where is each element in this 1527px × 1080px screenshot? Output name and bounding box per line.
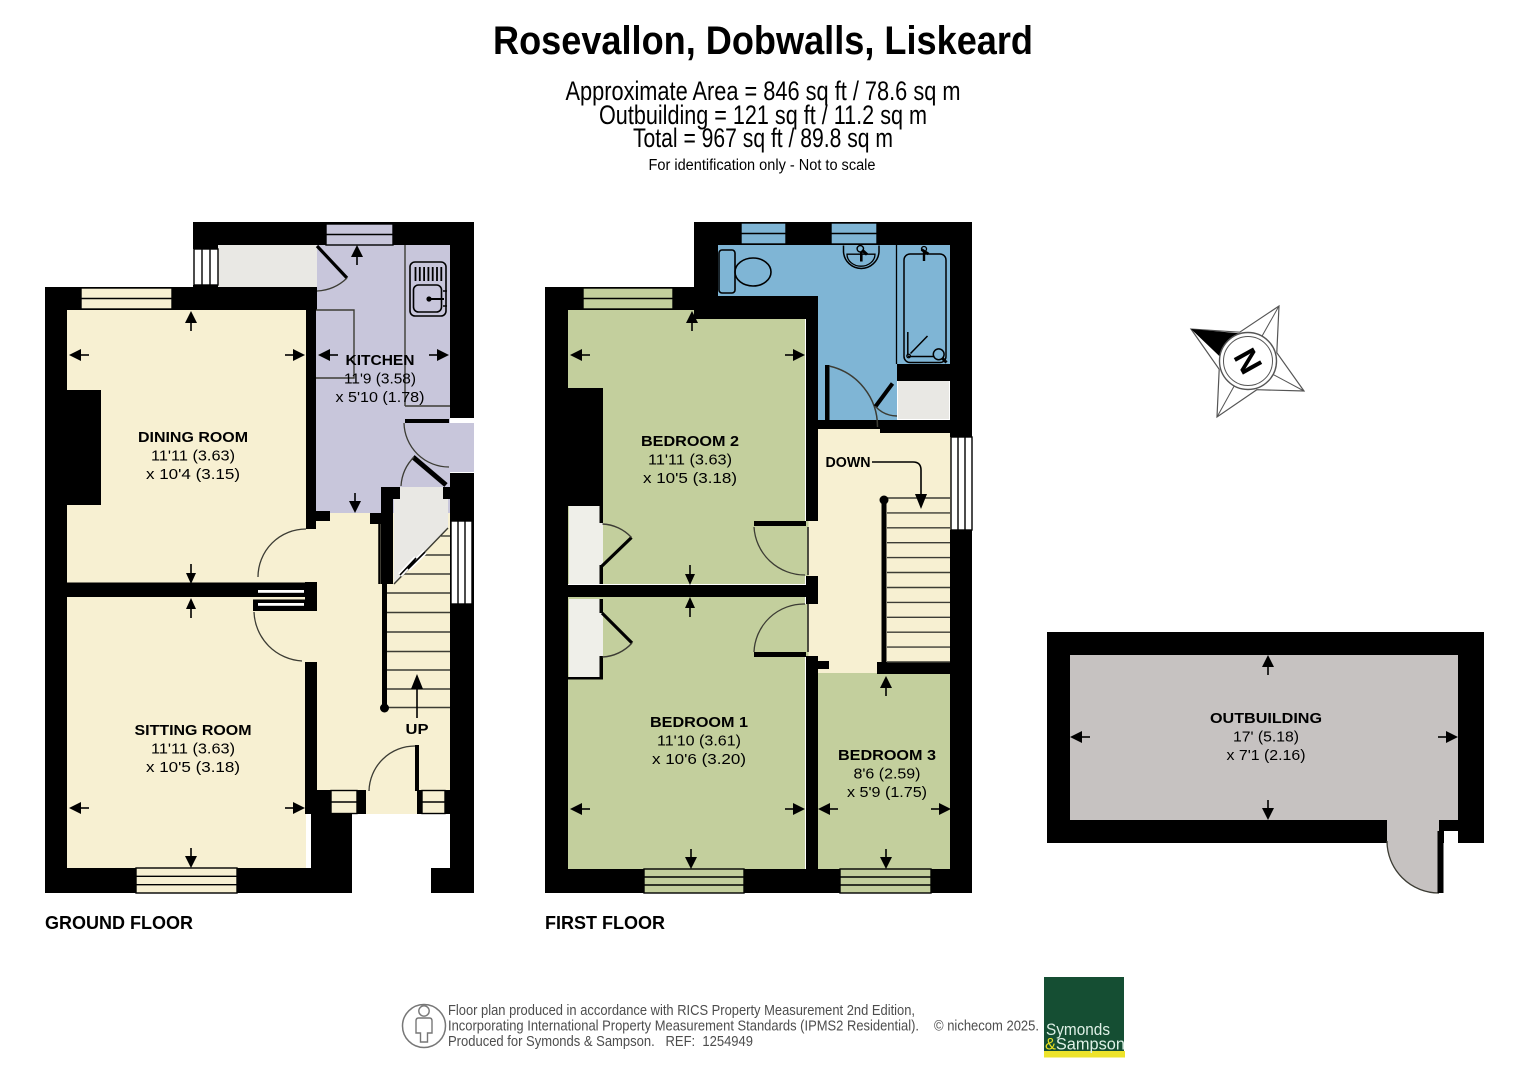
svg-text:x 10'6 (3.20): x 10'6 (3.20) — [652, 751, 746, 768]
svg-text:UP: UP — [406, 721, 429, 738]
svg-text:x 10'5 (3.18): x 10'5 (3.18) — [643, 470, 737, 487]
svg-text:BEDROOM 1: BEDROOM 1 — [650, 714, 749, 731]
svg-text:x 5'9 (1.75): x 5'9 (1.75) — [847, 784, 927, 801]
svg-text:x 7'1 (2.16): x 7'1 (2.16) — [1227, 747, 1306, 764]
svg-text:11'11 (3.63): 11'11 (3.63) — [648, 452, 732, 469]
svg-text:Incorporating International Pr: Incorporating International Property Mea… — [448, 1018, 919, 1035]
svg-text:17' (5.18): 17' (5.18) — [1233, 729, 1299, 746]
svg-text:SITTING ROOM: SITTING ROOM — [135, 722, 252, 739]
svg-text:8'6 (2.59): 8'6 (2.59) — [854, 766, 921, 783]
svg-text:x 10'4 (3.15): x 10'4 (3.15) — [146, 466, 240, 483]
svg-text:FIRST FLOOR: FIRST FLOOR — [545, 913, 665, 933]
svg-text:GROUND FLOOR: GROUND FLOOR — [45, 913, 193, 933]
svg-text:11'10 (3.61): 11'10 (3.61) — [657, 733, 741, 750]
svg-text:&Sampson: &Sampson — [1045, 1036, 1125, 1054]
svg-text:11'11 (3.63): 11'11 (3.63) — [151, 448, 235, 465]
svg-text:x 5'10 (1.78): x 5'10 (1.78) — [336, 389, 425, 406]
svg-text:For identification only - Not: For identification only - Not to scale — [649, 157, 876, 174]
svg-text:OUTBUILDING: OUTBUILDING — [1210, 710, 1322, 727]
svg-text:KITCHEN: KITCHEN — [346, 352, 415, 369]
svg-text:11'11 (3.63): 11'11 (3.63) — [151, 741, 235, 758]
svg-text:© nichecom 2025.: © nichecom 2025. — [934, 1018, 1039, 1035]
svg-text:x 10'5 (3.18): x 10'5 (3.18) — [146, 759, 240, 776]
svg-text:DOWN: DOWN — [826, 454, 871, 471]
svg-text:Total = 967 sq ft / 89.8 sq m: Total = 967 sq ft / 89.8 sq m — [633, 123, 893, 153]
svg-text:DINING ROOM: DINING ROOM — [138, 429, 248, 446]
svg-text:BEDROOM 3: BEDROOM 3 — [838, 747, 936, 764]
svg-text:Floor plan produced in accorda: Floor plan produced in accordance with R… — [448, 1002, 915, 1019]
svg-text:BEDROOM 2: BEDROOM 2 — [641, 433, 739, 450]
svg-text:Rosevallon, Dobwalls, Liskeard: Rosevallon, Dobwalls, Liskeard — [493, 19, 1033, 63]
svg-text:Produced for Symonds & Sampson: Produced for Symonds & Sampson. REF: 125… — [448, 1033, 753, 1050]
svg-text:11'9 (3.58): 11'9 (3.58) — [344, 371, 416, 388]
